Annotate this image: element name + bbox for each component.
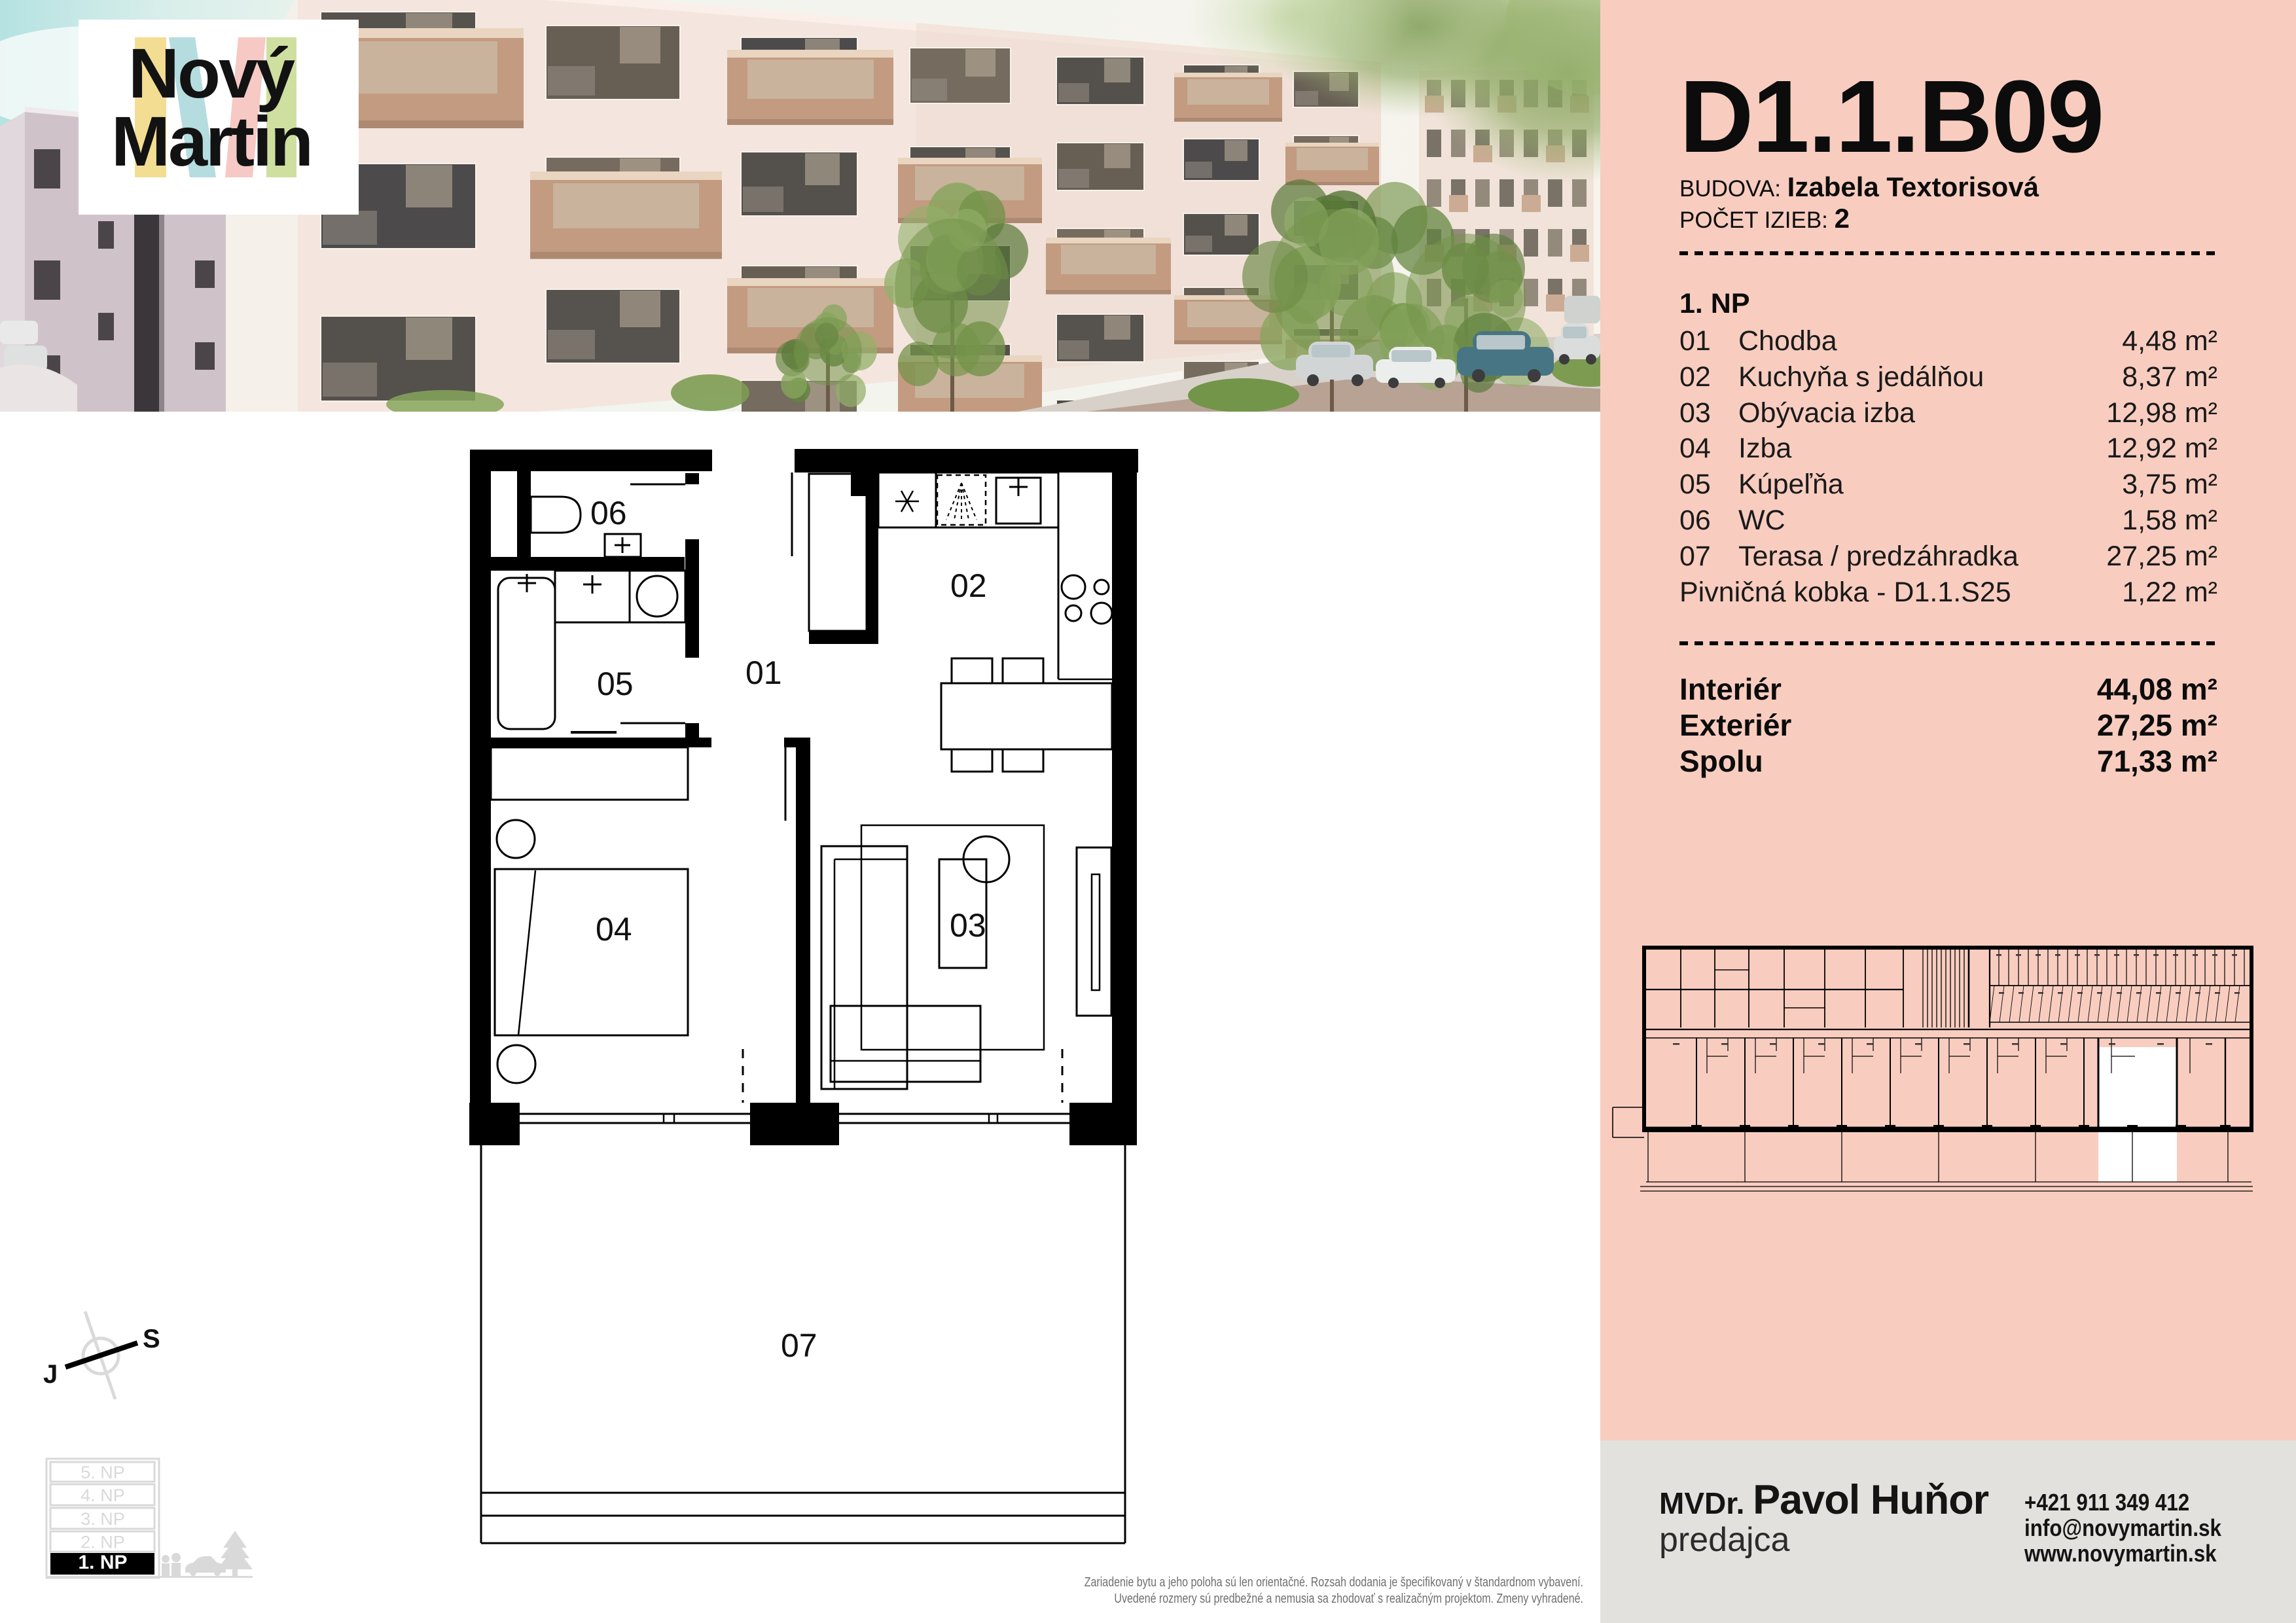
svg-text:5. NP: 5. NP [81, 1463, 125, 1482]
svg-text:02: 02 [950, 567, 987, 604]
svg-text:07: 07 [781, 1327, 817, 1364]
svg-text:03: 03 [950, 907, 986, 944]
svg-text:05: 05 [597, 666, 634, 702]
svg-text:01: 01 [745, 654, 782, 691]
svg-text:1. NP: 1. NP [78, 1552, 127, 1573]
svg-text:4. NP: 4. NP [81, 1486, 125, 1505]
svg-text:2. NP: 2. NP [81, 1533, 125, 1552]
svg-text:04: 04 [596, 911, 632, 948]
svg-text:3. NP: 3. NP [81, 1509, 125, 1529]
svg-text:06: 06 [590, 495, 627, 531]
svg-text:S: S [143, 1325, 160, 1353]
svg-text:J: J [43, 1360, 58, 1389]
